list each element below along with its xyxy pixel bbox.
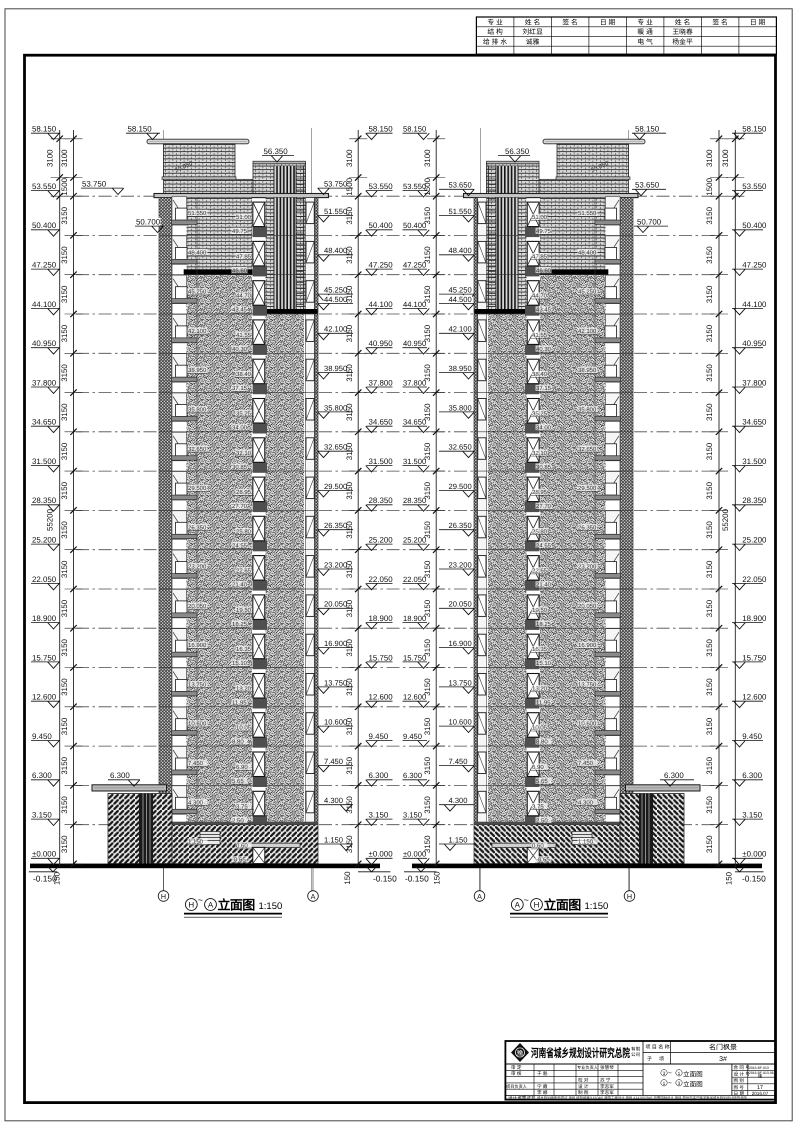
svg-text:子 项: 子 项 <box>647 1057 664 1063</box>
svg-text:6.300: 6.300 <box>742 771 762 780</box>
svg-text:15.10: 15.10 <box>536 660 552 667</box>
svg-text:40.950: 40.950 <box>742 339 767 348</box>
svg-text:32.10: 32.10 <box>532 450 548 457</box>
svg-text:3100: 3100 <box>423 149 432 167</box>
svg-text:1.150: 1.150 <box>449 835 468 844</box>
svg-text:1: 1 <box>663 1081 666 1087</box>
svg-text:城乡规划编制资质证 甲级 城规编第(161046) 建筑工: 城乡规划编制资质证 甲级 城规编第(161046) 建筑工程设计 甲级 A141… <box>537 1096 747 1100</box>
svg-text:制 图: 制 图 <box>578 1090 589 1095</box>
svg-text:56.350: 56.350 <box>505 147 530 156</box>
svg-text:8.80: 8.80 <box>232 739 244 746</box>
svg-text:51.00: 51.00 <box>236 214 252 221</box>
svg-text:1:150: 1:150 <box>259 901 283 912</box>
svg-text:21.40: 21.40 <box>232 582 248 589</box>
svg-text:3#: 3# <box>719 1056 727 1063</box>
svg-text:审 核: 审 核 <box>511 1071 522 1076</box>
svg-text:26.350: 26.350 <box>578 524 597 531</box>
svg-text:3150: 3150 <box>423 639 432 657</box>
svg-text:58.150: 58.150 <box>742 125 767 134</box>
svg-text:3150: 3150 <box>345 639 354 657</box>
svg-text:13.750: 13.750 <box>324 678 347 687</box>
svg-text:38.40: 38.40 <box>236 371 252 378</box>
svg-text:专 业: 专 业 <box>487 18 503 26</box>
svg-text:李 娜: 李 娜 <box>537 1090 548 1095</box>
svg-text:28.95: 28.95 <box>236 489 252 496</box>
svg-text:9.450: 9.450 <box>742 732 762 741</box>
svg-text:44.100: 44.100 <box>32 300 57 309</box>
svg-text:58.150: 58.150 <box>369 125 394 134</box>
svg-text:13.750: 13.750 <box>449 678 472 687</box>
svg-text:26.350: 26.350 <box>324 521 347 530</box>
svg-text:4.300: 4.300 <box>188 799 204 806</box>
svg-text:6.300: 6.300 <box>110 771 130 780</box>
svg-text:34.650: 34.650 <box>742 418 767 427</box>
svg-text:50.400: 50.400 <box>742 221 767 230</box>
svg-text:3150: 3150 <box>423 756 432 774</box>
svg-text:29.500: 29.500 <box>578 485 597 492</box>
svg-text:51.550: 51.550 <box>449 207 472 216</box>
svg-text:5.65: 5.65 <box>536 778 548 785</box>
svg-text:3.150: 3.150 <box>369 811 389 820</box>
svg-text:3150: 3150 <box>60 324 69 342</box>
svg-text:姓 名: 姓 名 <box>525 18 540 26</box>
svg-text:43.45: 43.45 <box>536 307 552 314</box>
svg-text:3150: 3150 <box>60 835 69 853</box>
svg-text:有限: 有限 <box>631 1047 641 1052</box>
svg-text:34.00: 34.00 <box>536 425 552 432</box>
svg-text:150: 150 <box>433 871 442 885</box>
svg-text:4.300: 4.300 <box>324 796 343 805</box>
svg-text:H: H <box>627 892 632 901</box>
svg-text:28.95: 28.95 <box>532 489 548 496</box>
svg-text:3150: 3150 <box>60 285 69 303</box>
svg-text:于 魁: 于 魁 <box>537 1071 548 1076</box>
svg-text:32.10: 32.10 <box>236 450 252 457</box>
svg-text:29.500: 29.500 <box>449 482 472 491</box>
svg-text:3150: 3150 <box>423 560 432 578</box>
svg-text:3150: 3150 <box>60 756 69 774</box>
svg-text:35.25: 35.25 <box>532 411 548 418</box>
svg-text:3100: 3100 <box>46 149 55 167</box>
svg-text:53.750: 53.750 <box>324 180 347 189</box>
svg-text:3150: 3150 <box>705 521 714 539</box>
svg-text:28.350: 28.350 <box>369 496 394 505</box>
svg-text:结 构: 结 构 <box>487 28 503 36</box>
svg-text:31.500: 31.500 <box>32 457 57 466</box>
svg-text:15.750: 15.750 <box>742 653 767 662</box>
svg-text:3150: 3150 <box>423 206 432 224</box>
svg-text:23.200: 23.200 <box>449 560 472 569</box>
svg-text:34.650: 34.650 <box>32 418 57 427</box>
svg-text:45.250: 45.250 <box>449 286 472 295</box>
svg-text:3.150: 3.150 <box>742 811 762 820</box>
svg-text:32.650: 32.650 <box>449 443 472 452</box>
svg-text:3150: 3150 <box>705 364 714 382</box>
svg-text:日 期: 日 期 <box>600 18 616 26</box>
svg-text:42.100: 42.100 <box>188 328 207 335</box>
svg-text:9.450: 9.450 <box>32 732 52 741</box>
svg-text:3.75: 3.75 <box>236 803 248 810</box>
svg-text:37.800: 37.800 <box>369 378 394 387</box>
svg-text:3150: 3150 <box>705 835 714 853</box>
svg-text:49.75: 49.75 <box>232 228 248 235</box>
svg-text:李志军: 李志军 <box>600 1090 614 1095</box>
svg-text:16.900: 16.900 <box>578 642 597 649</box>
svg-text:H: H <box>188 901 194 910</box>
svg-text:刘红显: 刘红显 <box>522 28 543 36</box>
svg-text:23.200: 23.200 <box>188 564 207 571</box>
svg-text:48.400: 48.400 <box>578 249 597 256</box>
svg-text:0.60: 0.60 <box>532 843 544 850</box>
svg-text:28.350: 28.350 <box>742 496 767 505</box>
svg-text:10.05: 10.05 <box>236 725 252 732</box>
svg-text:26.350: 26.350 <box>449 521 472 530</box>
svg-text:~: ~ <box>668 1080 672 1087</box>
svg-text:47.250: 47.250 <box>742 261 767 270</box>
svg-text:16.900: 16.900 <box>324 639 347 648</box>
svg-text:37.800: 37.800 <box>742 378 767 387</box>
svg-text:35.800: 35.800 <box>324 403 347 412</box>
svg-text:38.950: 38.950 <box>188 367 207 374</box>
svg-text:8.80: 8.80 <box>536 739 548 746</box>
svg-text:17: 17 <box>757 1085 763 1091</box>
svg-text:12.600: 12.600 <box>32 693 57 702</box>
svg-text:16.35: 16.35 <box>236 646 252 653</box>
svg-text:3150: 3150 <box>60 639 69 657</box>
svg-text:53.550: 53.550 <box>742 182 767 191</box>
svg-text:A: A <box>311 892 316 901</box>
svg-text:31.500: 31.500 <box>742 457 767 466</box>
svg-text:3.150: 3.150 <box>403 811 422 820</box>
svg-text:项目负责人: 项目负责人 <box>506 1084 528 1089</box>
svg-text:豫: 豫 <box>517 1049 524 1057</box>
svg-text:58.150: 58.150 <box>635 125 660 134</box>
svg-text:3150: 3150 <box>705 756 714 774</box>
svg-text:暖 通: 暖 通 <box>637 28 653 36</box>
svg-text:A: A <box>208 901 214 910</box>
svg-text:-0.150: -0.150 <box>405 874 429 884</box>
svg-text:42.100: 42.100 <box>578 328 597 335</box>
svg-text:张慧琴: 张慧琴 <box>600 1065 614 1070</box>
svg-text:3150: 3150 <box>345 835 354 853</box>
svg-text:3150: 3150 <box>423 717 432 735</box>
svg-text:58.150: 58.150 <box>32 125 57 134</box>
svg-text:设计资质证号: 设计资质证号 <box>508 1095 536 1100</box>
svg-text:±0.000: ±0.000 <box>369 850 394 859</box>
svg-text:签 名: 签 名 <box>712 18 727 26</box>
svg-text:44.500: 44.500 <box>324 295 347 304</box>
svg-text:4.300: 4.300 <box>449 796 468 805</box>
svg-text:6.300: 6.300 <box>664 771 684 780</box>
svg-text:3150: 3150 <box>423 599 432 617</box>
svg-text:3150: 3150 <box>705 442 714 460</box>
svg-text:51.00: 51.00 <box>532 214 548 221</box>
svg-text:35.800: 35.800 <box>578 407 597 414</box>
svg-text:3150: 3150 <box>705 324 714 342</box>
svg-text:34.650: 34.650 <box>369 418 394 427</box>
svg-text:41.55: 41.55 <box>236 332 252 339</box>
svg-text:1500: 1500 <box>705 177 714 195</box>
svg-text:58.150: 58.150 <box>128 125 153 134</box>
svg-text:56.350: 56.350 <box>264 147 289 156</box>
svg-text:河南省城乡规划设计研究总院: 河南省城乡规划设计研究总院 <box>531 1046 630 1060</box>
svg-text:15.750: 15.750 <box>369 653 394 662</box>
svg-text:35.800: 35.800 <box>188 407 207 414</box>
svg-text:3150: 3150 <box>60 521 69 539</box>
svg-text:6.300: 6.300 <box>32 771 52 780</box>
svg-text:50.400: 50.400 <box>369 221 394 230</box>
svg-text:15.750: 15.750 <box>32 653 57 662</box>
svg-text:18.25: 18.25 <box>232 621 248 628</box>
svg-text:项 目 名 称: 项 目 名 称 <box>646 1044 670 1051</box>
svg-text:53.650: 53.650 <box>635 181 660 190</box>
svg-text:24.55: 24.55 <box>232 542 248 549</box>
svg-text:13.20: 13.20 <box>236 686 252 693</box>
svg-text:3150: 3150 <box>423 442 432 460</box>
svg-text:3150: 3150 <box>423 835 432 853</box>
svg-text:3150: 3150 <box>345 481 354 499</box>
svg-text:3150: 3150 <box>345 285 354 303</box>
svg-text:13.750: 13.750 <box>578 682 597 689</box>
svg-text:~: ~ <box>524 895 529 905</box>
svg-text:22.65: 22.65 <box>236 568 252 575</box>
svg-text:37.800: 37.800 <box>32 378 57 387</box>
svg-text:10.600: 10.600 <box>449 718 472 727</box>
svg-text:3100: 3100 <box>60 149 69 167</box>
svg-text:51.550: 51.550 <box>578 210 597 217</box>
svg-text:10.600: 10.600 <box>188 721 207 728</box>
svg-text:3150: 3150 <box>60 364 69 382</box>
svg-text:22.050: 22.050 <box>32 575 57 584</box>
svg-text:3150: 3150 <box>423 324 432 342</box>
svg-text:立面图: 立面图 <box>218 898 256 913</box>
svg-text:3150: 3150 <box>345 324 354 342</box>
svg-text:25.200: 25.200 <box>742 536 767 545</box>
svg-text:6.300: 6.300 <box>403 771 422 780</box>
svg-text:9.450: 9.450 <box>403 732 422 741</box>
svg-text:3150: 3150 <box>60 442 69 460</box>
svg-text:40.950: 40.950 <box>369 339 394 348</box>
svg-text:6.90: 6.90 <box>236 764 248 771</box>
svg-text:1: 1 <box>678 1071 681 1077</box>
svg-text:3150: 3150 <box>423 521 432 539</box>
svg-text:2016-BF-013: 2016-BF-013 <box>749 1066 769 1070</box>
svg-text:22.050: 22.050 <box>369 575 394 584</box>
svg-text:1.150: 1.150 <box>578 839 594 846</box>
svg-text:11.95: 11.95 <box>536 700 551 707</box>
svg-text:51.550: 51.550 <box>188 210 207 217</box>
svg-text:3150: 3150 <box>705 481 714 499</box>
svg-text:32.650: 32.650 <box>324 443 347 452</box>
svg-text:48.400: 48.400 <box>324 246 347 255</box>
svg-text:47.250: 47.250 <box>369 261 394 270</box>
svg-text:图 号: 图 号 <box>734 1085 745 1090</box>
svg-text:3150: 3150 <box>705 678 714 696</box>
svg-text:立面图: 立面图 <box>683 1081 703 1089</box>
svg-text:55200: 55200 <box>721 508 730 531</box>
svg-text:19.50: 19.50 <box>236 607 252 614</box>
svg-text:签 名: 签 名 <box>562 18 577 26</box>
svg-text:7.450: 7.450 <box>324 757 343 766</box>
svg-text:5.65: 5.65 <box>232 778 244 785</box>
svg-text:12.600: 12.600 <box>369 693 394 702</box>
svg-text:校 对: 校 对 <box>578 1078 589 1083</box>
svg-text:53.750: 53.750 <box>82 180 107 189</box>
svg-text:50.700: 50.700 <box>637 218 662 227</box>
svg-text:7.450: 7.450 <box>449 757 468 766</box>
svg-text:3150: 3150 <box>60 717 69 735</box>
svg-text:47.85: 47.85 <box>532 253 548 260</box>
svg-text:3150: 3150 <box>345 560 354 578</box>
svg-text:34.00: 34.00 <box>232 425 248 432</box>
svg-text:31.500: 31.500 <box>369 457 394 466</box>
svg-text:37.15: 37.15 <box>232 385 248 392</box>
svg-text:3150: 3150 <box>60 403 69 421</box>
svg-text:44.70: 44.70 <box>236 293 252 300</box>
svg-text:日 期: 日 期 <box>750 18 766 26</box>
svg-text:37.15: 37.15 <box>536 385 552 392</box>
svg-text:3.75: 3.75 <box>532 803 544 810</box>
svg-text:46.60: 46.60 <box>232 267 248 274</box>
svg-text:21.40: 21.40 <box>536 582 552 589</box>
svg-text:王晓春: 王晓春 <box>672 28 693 36</box>
svg-text:~: ~ <box>668 1070 672 1077</box>
svg-text:1500: 1500 <box>423 177 432 195</box>
svg-text:3150: 3150 <box>345 442 354 460</box>
svg-text:38.950: 38.950 <box>578 367 597 374</box>
svg-text:审 定: 审 定 <box>511 1065 522 1070</box>
svg-text:2.50: 2.50 <box>232 817 244 824</box>
svg-text:10.05: 10.05 <box>532 725 548 732</box>
svg-text:35.800: 35.800 <box>449 403 472 412</box>
svg-text:3150: 3150 <box>60 206 69 224</box>
svg-text:48.400: 48.400 <box>449 246 472 255</box>
svg-text:2.50: 2.50 <box>536 817 548 824</box>
svg-text:3: 3 <box>678 1081 681 1087</box>
svg-text:3150: 3150 <box>60 246 69 264</box>
svg-text:1.150: 1.150 <box>324 835 343 844</box>
svg-text:18.900: 18.900 <box>32 614 57 623</box>
svg-text:3150: 3150 <box>705 403 714 421</box>
svg-text:47.250: 47.250 <box>32 261 57 270</box>
svg-text:~: ~ <box>198 895 203 905</box>
svg-text:35.25: 35.25 <box>236 411 252 418</box>
svg-text:3150: 3150 <box>345 403 354 421</box>
svg-text:53.650: 53.650 <box>449 181 472 190</box>
svg-text:±0.000: ±0.000 <box>32 850 57 859</box>
svg-text:23.200: 23.200 <box>578 564 597 571</box>
svg-text:3150: 3150 <box>423 246 432 264</box>
svg-text:1500: 1500 <box>345 177 354 195</box>
svg-text:22.65: 22.65 <box>532 568 548 575</box>
svg-text:53.550: 53.550 <box>32 182 57 191</box>
svg-text:4.300: 4.300 <box>578 799 594 806</box>
svg-text:44.100: 44.100 <box>369 300 394 309</box>
svg-text:45.250: 45.250 <box>188 289 207 296</box>
svg-text:20.050: 20.050 <box>578 603 597 610</box>
svg-text:1:150: 1:150 <box>585 901 609 912</box>
svg-text:38.950: 38.950 <box>449 364 472 373</box>
svg-text:45.250: 45.250 <box>324 286 347 295</box>
svg-text:名门枫景: 名门枫景 <box>709 1044 737 1052</box>
svg-text:50.400: 50.400 <box>32 221 57 230</box>
svg-text:6.300: 6.300 <box>369 771 389 780</box>
svg-text:16.900: 16.900 <box>188 642 207 649</box>
svg-text:38.950: 38.950 <box>324 364 347 373</box>
svg-text:-0.150: -0.150 <box>373 874 397 884</box>
svg-text:3150: 3150 <box>345 678 354 696</box>
svg-text:3150: 3150 <box>423 678 432 696</box>
svg-text:3100: 3100 <box>721 149 730 167</box>
svg-text:25.200: 25.200 <box>369 536 394 545</box>
svg-text:3150: 3150 <box>345 246 354 264</box>
svg-text:10.600: 10.600 <box>324 718 347 727</box>
svg-text:3150: 3150 <box>345 599 354 617</box>
svg-text:150: 150 <box>343 871 352 885</box>
svg-text:3150: 3150 <box>345 206 354 224</box>
svg-text:22.050: 22.050 <box>742 575 767 584</box>
svg-text:-0.65: -0.65 <box>232 857 246 864</box>
svg-text:3150: 3150 <box>423 364 432 382</box>
svg-text:电 气: 电 气 <box>637 38 653 46</box>
svg-text:合 同 号: 合 同 号 <box>734 1065 751 1070</box>
svg-text:43.45: 43.45 <box>232 307 248 314</box>
svg-text:3150: 3150 <box>345 364 354 382</box>
svg-text:3150: 3150 <box>423 403 432 421</box>
svg-text:49.75: 49.75 <box>536 228 552 235</box>
svg-text:50.700: 50.700 <box>136 218 161 227</box>
svg-text:42.100: 42.100 <box>324 325 347 334</box>
svg-text:9.450: 9.450 <box>369 732 389 741</box>
svg-text:公司: 公司 <box>631 1052 641 1057</box>
svg-text:设 计 号: 设 计 号 <box>734 1072 751 1077</box>
svg-text:3150: 3150 <box>705 246 714 264</box>
svg-text:16.35: 16.35 <box>532 646 548 653</box>
svg-text:3100: 3100 <box>345 149 354 167</box>
svg-text:3150: 3150 <box>345 756 354 774</box>
svg-text:42.100: 42.100 <box>449 325 472 334</box>
svg-text:32.650: 32.650 <box>578 446 597 453</box>
svg-text:40.950: 40.950 <box>32 339 57 348</box>
svg-text:3150: 3150 <box>345 717 354 735</box>
svg-text:47.85: 47.85 <box>236 253 252 260</box>
svg-text:12.600: 12.600 <box>742 693 767 702</box>
svg-text:专 业: 专 业 <box>637 18 653 26</box>
svg-text:29.500: 29.500 <box>324 482 347 491</box>
svg-text:26.350: 26.350 <box>188 524 207 531</box>
svg-text:3150: 3150 <box>60 599 69 617</box>
svg-text:20.050: 20.050 <box>324 600 347 609</box>
svg-text:专业负责人: 专业负责人 <box>577 1065 599 1070</box>
svg-text:图 别: 图 别 <box>734 1078 745 1083</box>
svg-text:25.80: 25.80 <box>236 528 252 535</box>
svg-text:-0.150: -0.150 <box>742 874 766 884</box>
svg-text:宁 霞: 宁 霞 <box>537 1084 548 1089</box>
svg-text:3150: 3150 <box>705 560 714 578</box>
svg-text:150: 150 <box>53 871 62 885</box>
svg-text:0.60: 0.60 <box>236 843 248 850</box>
svg-text:姓 名: 姓 名 <box>675 18 690 26</box>
svg-text:20.050: 20.050 <box>188 603 207 610</box>
svg-text:±0.000: ±0.000 <box>742 850 767 859</box>
svg-text:15.10: 15.10 <box>232 660 248 667</box>
svg-text:10.600: 10.600 <box>578 721 597 728</box>
svg-text:13.750: 13.750 <box>188 682 207 689</box>
svg-text:13.20: 13.20 <box>532 686 548 693</box>
svg-text:3.150: 3.150 <box>32 811 52 820</box>
svg-text:A: A <box>515 901 521 910</box>
svg-text:7.450: 7.450 <box>578 760 594 767</box>
